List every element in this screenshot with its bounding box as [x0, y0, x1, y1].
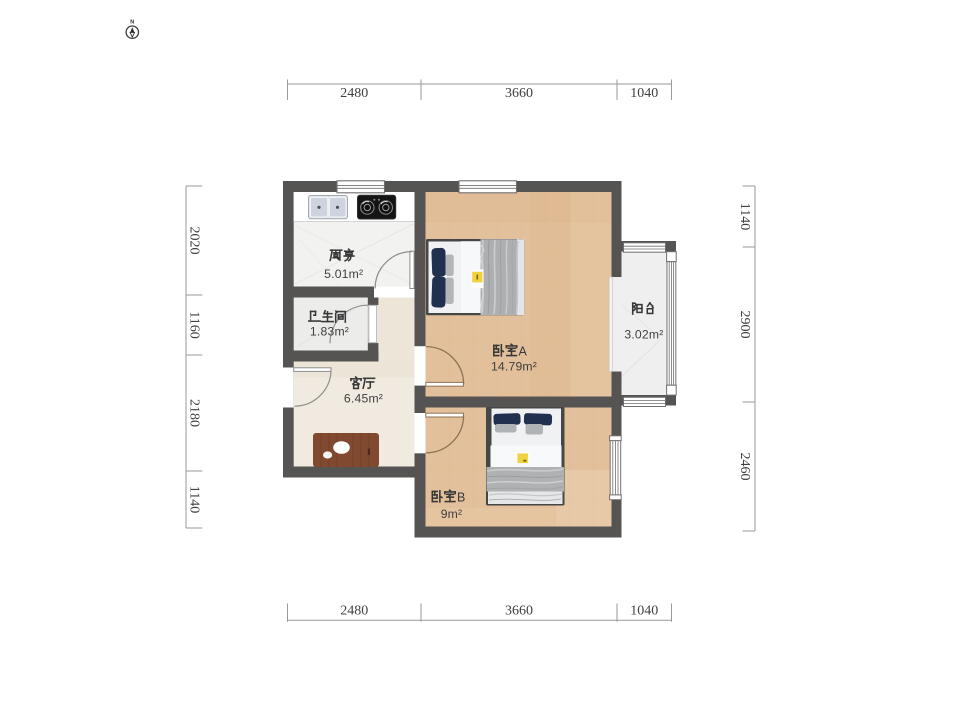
svg-text:2020: 2020 — [187, 227, 202, 255]
svg-text:A: A — [519, 344, 528, 358]
svg-text:1040: 1040 — [630, 604, 658, 619]
svg-text:B: B — [457, 490, 465, 504]
svg-text:1040: 1040 — [630, 86, 658, 101]
svg-text:3660: 3660 — [505, 86, 533, 101]
svg-text:1160: 1160 — [187, 311, 202, 338]
svg-text:6.45m²: 6.45m² — [344, 391, 383, 405]
svg-text:N: N — [130, 20, 134, 26]
svg-text:2460: 2460 — [737, 453, 752, 481]
svg-text:9m²: 9m² — [441, 507, 463, 521]
svg-text:2900: 2900 — [737, 311, 752, 339]
svg-text:2180: 2180 — [187, 399, 202, 427]
svg-text:1140: 1140 — [187, 486, 202, 513]
svg-text:1.83m²: 1.83m² — [310, 325, 349, 339]
svg-text:2480: 2480 — [340, 86, 368, 101]
svg-text:1140: 1140 — [737, 203, 752, 230]
svg-text:2480: 2480 — [340, 604, 368, 619]
svg-text:3660: 3660 — [505, 604, 533, 619]
svg-text:5.01m²: 5.01m² — [324, 267, 363, 281]
svg-text:14.79m²: 14.79m² — [491, 360, 537, 374]
svg-text:3.02m²: 3.02m² — [624, 327, 663, 341]
